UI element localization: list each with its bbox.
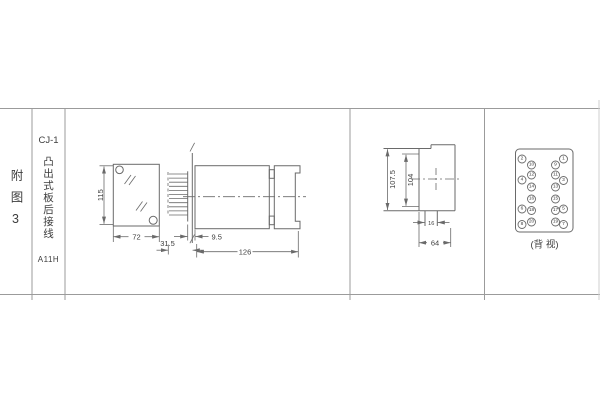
terminal-number: 4	[521, 177, 524, 183]
terminal-number: 5	[562, 206, 565, 212]
rear-outline-view: 107.5 104 16 64	[384, 145, 460, 248]
dim-panel-thickness: 9.5	[174, 225, 222, 242]
rear-cover-side	[274, 166, 300, 229]
terminal-pin: 5	[560, 205, 568, 213]
mounting-hole-bottom	[149, 216, 157, 224]
mounting-panel-line	[190, 143, 195, 243]
dim-label-16: 16	[428, 221, 434, 227]
catalog-page: 115 72	[0, 0, 600, 400]
latch-bottom	[269, 216, 274, 225]
terminal-number: 3	[562, 177, 565, 183]
product-code: A11H	[32, 255, 65, 264]
dim-label-104: 104	[406, 174, 415, 187]
front-view: 115 72	[96, 164, 159, 242]
technical-drawing: 115 72	[0, 0, 600, 400]
product-info-cell: CJ-1 凸出式板后接线 A11H	[32, 109, 65, 295]
relay-body-side	[195, 166, 269, 229]
back-view-caption: (背 视)	[531, 239, 559, 251]
mounting-hole-top	[116, 166, 124, 174]
dim-inner-height: 104	[406, 155, 415, 206]
terminal-number: 9	[554, 162, 557, 168]
dim-overall-height: 107.5	[388, 149, 397, 210]
dim-label-126: 126	[239, 247, 252, 256]
terminal-number: 19	[553, 219, 559, 225]
terminal-number: 13	[553, 184, 559, 190]
terminal-number: 1	[562, 156, 565, 162]
terminal-pin: 13	[552, 183, 560, 191]
terminal-pin: 20	[528, 218, 536, 226]
dim-label-107-5: 107.5	[388, 170, 397, 189]
terminal-pin: 10	[528, 161, 536, 169]
terminal-pin: 8	[518, 221, 526, 229]
dim-front-height: 115	[96, 166, 113, 225]
dim-label-9-5: 9.5	[212, 232, 222, 241]
terminal-number: 10	[529, 162, 535, 168]
terminal-pin: 15	[552, 195, 560, 203]
terminal-pin: 14	[528, 183, 536, 191]
dim-tab-width: 16	[413, 221, 450, 227]
model-label: CJ-1	[32, 135, 65, 146]
terminal-pin: 1	[560, 155, 568, 163]
dim-label-72: 72	[132, 232, 140, 241]
terminal-pin: 11	[552, 171, 560, 179]
terminal-number: 6	[521, 206, 524, 212]
side-view: 9.5 31.5 126	[157, 143, 307, 258]
dim-outline-width: 64	[419, 212, 451, 247]
terminal-pin: 7	[560, 221, 568, 229]
figure-label: 附图3	[7, 169, 26, 235]
dim-label-115: 115	[96, 189, 105, 201]
terminal-pin: 9	[552, 161, 560, 169]
terminal-pin: 12	[528, 171, 536, 179]
product-title: 凸出式板后接线	[41, 156, 56, 240]
terminal-number: 12	[529, 172, 535, 178]
terminal-number: 15	[553, 196, 559, 202]
terminal-pin: 4	[518, 176, 526, 184]
dim-label-31-5: 31.5	[160, 239, 175, 248]
terminal-number: 16	[529, 196, 535, 202]
terminal-pin: 18	[528, 207, 536, 215]
terminal-pin: 3	[560, 177, 568, 185]
terminal-number: 7	[562, 221, 565, 227]
dim-front-width: 72	[113, 227, 159, 243]
terminal-number: 14	[529, 184, 535, 190]
terminal-number: 8	[521, 221, 524, 227]
terminal-number: 20	[529, 219, 535, 225]
back-view: 2 1 10 9 12 11 4 3 14 13 16 15 6 5 18 17…	[516, 149, 574, 251]
terminal-pin: 17	[552, 207, 560, 215]
terminal-number: 2	[521, 156, 524, 162]
terminal-number: 17	[553, 207, 559, 213]
terminal-pin: 6	[518, 205, 526, 213]
glass-hatch-marks	[125, 175, 148, 212]
terminal-pin: 16	[528, 195, 536, 203]
latch-top	[269, 170, 274, 179]
terminal-pin: 19	[552, 218, 560, 226]
terminal-number: 18	[529, 207, 535, 213]
terminal-number: 11	[553, 172, 558, 178]
dim-label-64: 64	[431, 238, 439, 247]
figure-number-cell: 附图3	[0, 109, 32, 295]
terminal-pin: 2	[518, 155, 526, 163]
table-grid	[0, 100, 600, 300]
